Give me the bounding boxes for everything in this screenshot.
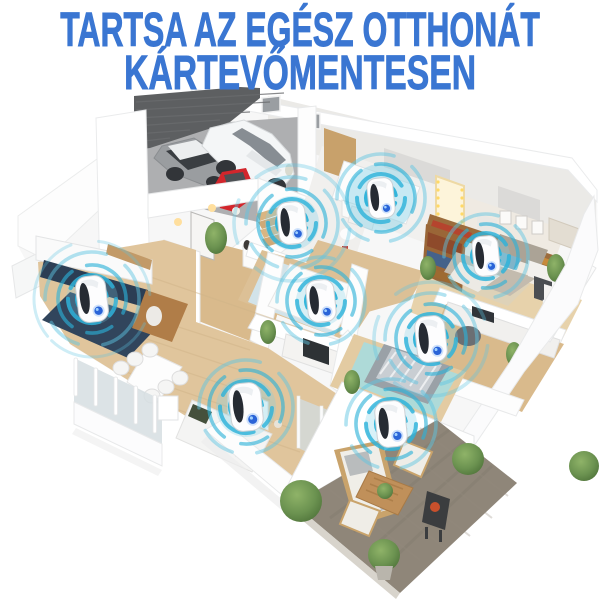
svg-text:KÁRTEVŐMENTESEN: KÁRTEVŐMENTESEN xyxy=(124,45,476,99)
